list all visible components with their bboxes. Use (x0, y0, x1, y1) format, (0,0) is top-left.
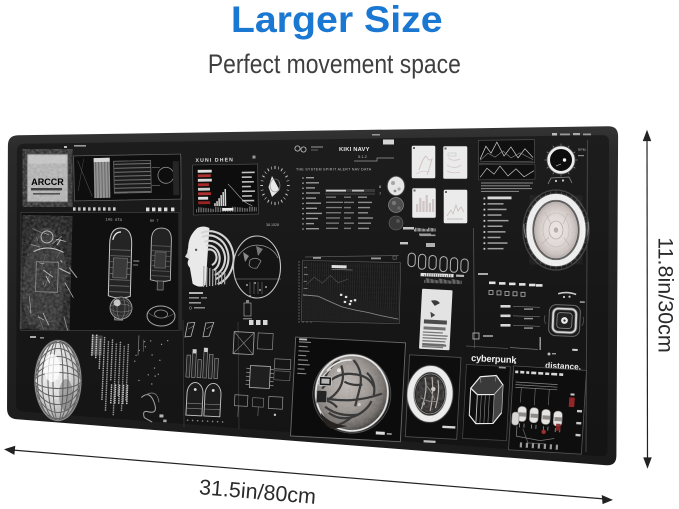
svg-text:1A5 ATA: 1A5 ATA (105, 219, 123, 223)
svg-text:XUNI DHEN: XUNI DHEN (195, 157, 234, 164)
svg-text:THE SYSTEM SPIRIT ALERT NAV: THE SYSTEM SPIRIT ALERT NAV DATA (296, 168, 372, 172)
svg-text:31.5in/80cm: 31.5in/80cm (198, 475, 317, 509)
svg-text:KIKI NAVY: KIKI NAVY (339, 147, 370, 153)
svg-text:5.1.2: 5.1.2 (358, 154, 368, 159)
svg-text:cyberpunk: cyberpunk (471, 353, 518, 365)
svg-text:ARCCR: ARCCR (31, 177, 64, 187)
svg-text:B8 T: B8 T (150, 220, 160, 224)
svg-text:RPM: RPM (578, 148, 586, 152)
svg-text:11.8in/30cm: 11.8in/30cm (654, 237, 678, 353)
svg-text:38.1528: 38.1528 (266, 223, 279, 227)
